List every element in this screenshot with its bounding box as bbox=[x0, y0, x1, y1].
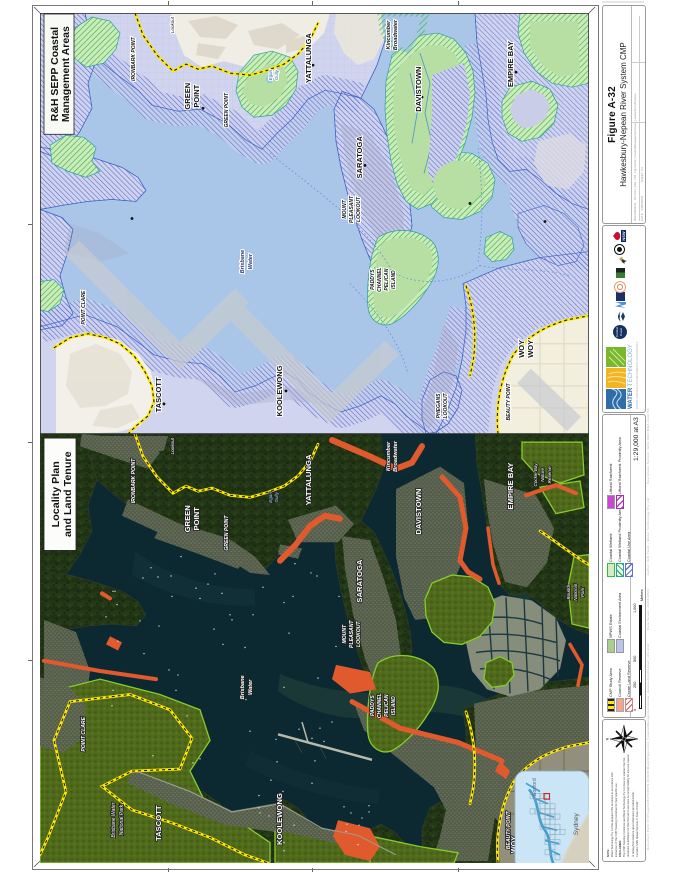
svg-text:POINT: POINT bbox=[192, 507, 201, 531]
svg-text:Bouddi: Bouddi bbox=[566, 584, 571, 599]
svg-text:POINT CLARE: POINT CLARE bbox=[81, 716, 87, 751]
svg-text:Locality Plan: Locality Plan bbox=[50, 461, 62, 527]
svg-text:PELICAN: PELICAN bbox=[384, 694, 390, 717]
svg-text:Management Areas: Management Areas bbox=[60, 26, 72, 122]
svg-text:IRONBARK POINT: IRONBARK POINT bbox=[131, 36, 137, 81]
svg-text:Broadwater: Broadwater bbox=[393, 440, 399, 472]
svg-text:MOUNT: MOUNT bbox=[342, 624, 348, 644]
svg-text:PHEGANS: PHEGANS bbox=[436, 393, 442, 418]
svg-text:Cockle Bay: Cockle Bay bbox=[533, 463, 538, 487]
svg-text:N: N bbox=[606, 737, 610, 740]
svg-text:PLEASANT: PLEASANT bbox=[349, 195, 355, 223]
svg-text:National Park: National Park bbox=[119, 804, 125, 835]
svg-text:Brisbane: Brisbane bbox=[240, 250, 246, 274]
svg-text:BEAUTY POINT: BEAUTY POINT bbox=[506, 382, 512, 420]
svg-text:POINT: POINT bbox=[192, 84, 201, 107]
svg-text:Kincumber: Kincumber bbox=[386, 441, 392, 471]
svg-text:YATTALUNGA: YATTALUNGA bbox=[304, 454, 313, 505]
svg-text:PADDYS: PADDYS bbox=[370, 695, 376, 717]
svg-text:GREEN POINT: GREEN POINT bbox=[224, 92, 230, 127]
svg-text:BEAUTY POINT: BEAUTY POINT bbox=[506, 810, 512, 849]
svg-text:PLEASANT: PLEASANT bbox=[349, 620, 355, 648]
svg-text:ISLAND: ISLAND bbox=[391, 696, 397, 715]
svg-text:CHANNEL: CHANNEL bbox=[377, 267, 383, 291]
svg-text:Lookout: Lookout bbox=[170, 437, 175, 454]
svg-text:TASCOTT: TASCOTT bbox=[154, 805, 163, 841]
svg-text:SARATOGA: SARATOGA bbox=[355, 136, 364, 179]
svg-text:Gully: Gully bbox=[274, 69, 279, 80]
svg-text:ISLAND: ISLAND bbox=[391, 270, 397, 289]
svg-text:POINT CLARE: POINT CLARE bbox=[81, 290, 87, 325]
svg-text:IRONBARK POINT: IRONBARK POINT bbox=[131, 458, 137, 503]
svg-text:Kincumber: Kincumber bbox=[386, 20, 392, 50]
svg-text:CHANNEL: CHANNEL bbox=[377, 693, 383, 718]
svg-text:Water: Water bbox=[248, 253, 254, 269]
svg-text:Egan: Egan bbox=[268, 69, 273, 80]
svg-text:PADDYS: PADDYS bbox=[370, 269, 376, 290]
svg-text:LOOKOUT: LOOKOUT bbox=[356, 621, 362, 647]
svg-text:LOOKOUT: LOOKOUT bbox=[356, 196, 362, 222]
svg-text:Gosford: Gosford bbox=[532, 778, 538, 796]
svg-text:DAVISTOWN: DAVISTOWN bbox=[414, 489, 423, 535]
svg-text:EMPIRE BAY: EMPIRE BAY bbox=[506, 41, 515, 87]
svg-text:PELICAN: PELICAN bbox=[384, 268, 390, 290]
svg-text:LOOKOUT: LOOKOUT bbox=[443, 392, 449, 418]
svg-text:WOY: WOY bbox=[517, 340, 526, 358]
svg-text:SARATOGA: SARATOGA bbox=[355, 559, 364, 603]
svg-text:Sydney: Sydney bbox=[573, 812, 580, 835]
svg-text:Water: Water bbox=[248, 679, 254, 695]
svg-text:Park: Park bbox=[580, 587, 585, 597]
svg-text:Lookout: Lookout bbox=[170, 16, 175, 33]
svg-text:WOY: WOY bbox=[526, 340, 535, 358]
svg-text:GREEN POINT: GREEN POINT bbox=[224, 515, 230, 551]
svg-text:NSW: NSW bbox=[621, 231, 626, 241]
svg-text:TASCOTT: TASCOTT bbox=[154, 377, 163, 412]
svg-text:YATTALUNGA: YATTALUNGA bbox=[304, 33, 313, 84]
svg-text:National: National bbox=[573, 583, 578, 601]
svg-text:Nature: Nature bbox=[540, 468, 545, 482]
svg-text:Reserve: Reserve bbox=[547, 466, 552, 484]
svg-text:MOUNT: MOUNT bbox=[342, 199, 348, 218]
svg-text:EMPIRE BAY: EMPIRE BAY bbox=[506, 463, 515, 510]
svg-text:and Land Tenure: and Land Tenure bbox=[62, 451, 74, 537]
svg-text:Gully: Gully bbox=[274, 491, 279, 502]
svg-text:Brisbane: Brisbane bbox=[240, 675, 246, 699]
svg-text:Broadwater: Broadwater bbox=[393, 19, 399, 50]
svg-text:Brisbane Water: Brisbane Water bbox=[111, 802, 117, 837]
svg-text:Egan: Egan bbox=[268, 492, 273, 503]
svg-text:GREEN: GREEN bbox=[183, 505, 192, 532]
svg-text:GREEN: GREEN bbox=[183, 83, 192, 110]
svg-text:DAVISTOWN: DAVISTOWN bbox=[414, 67, 423, 112]
svg-text:KOOLEWONG: KOOLEWONG bbox=[275, 365, 284, 416]
svg-text:KOOLEWONG: KOOLEWONG bbox=[275, 793, 284, 845]
